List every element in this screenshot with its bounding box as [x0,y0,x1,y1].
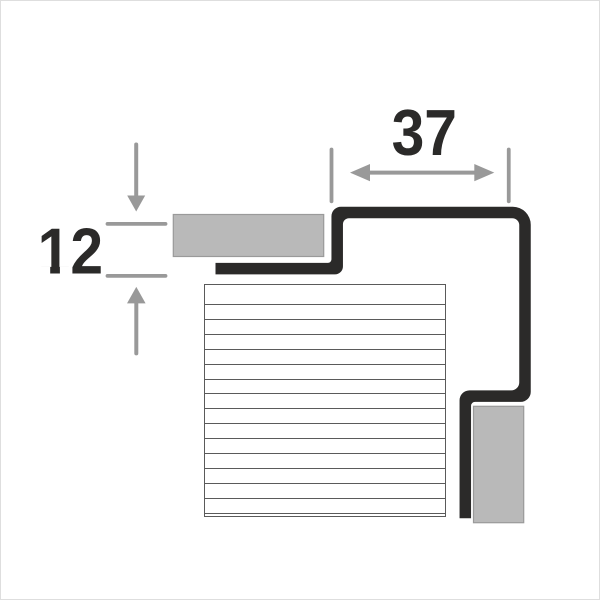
svg-text:12: 12 [38,216,103,288]
svg-text:37: 37 [392,97,457,169]
